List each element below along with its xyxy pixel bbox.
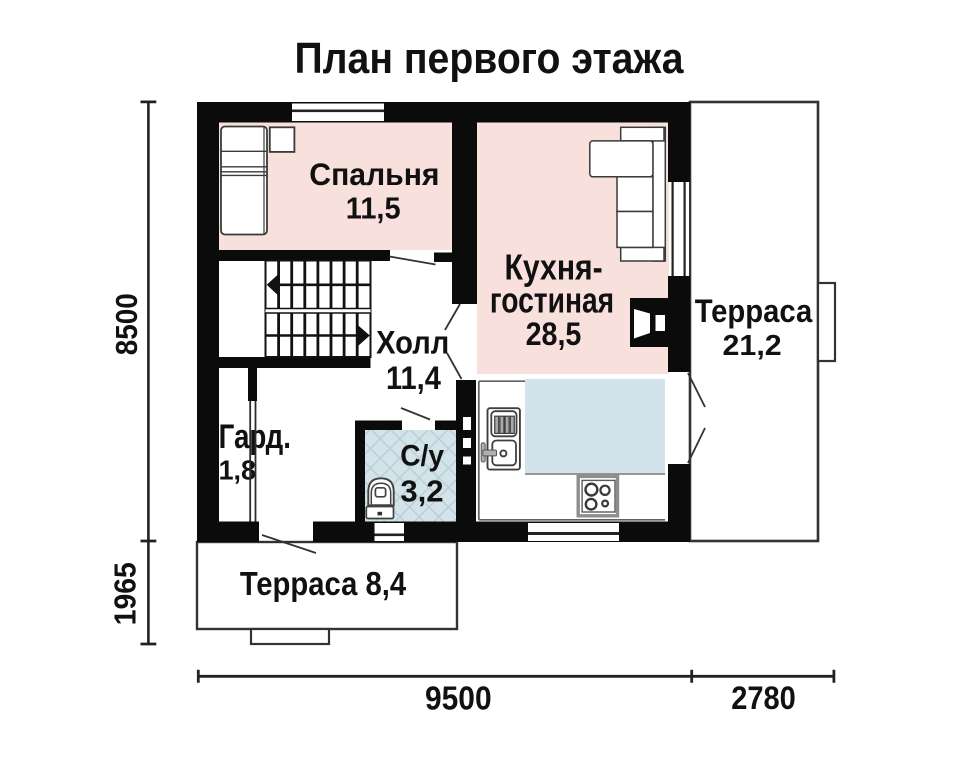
svg-text:3,2: 3,2 <box>400 474 443 509</box>
svg-text:11,4: 11,4 <box>386 360 441 396</box>
svg-text:гостиная: гостиная <box>490 280 614 321</box>
svg-text:11,5: 11,5 <box>346 191 401 226</box>
svg-text:Терраса 8,4: Терраса 8,4 <box>240 565 407 602</box>
svg-text:Терраса: Терраса <box>695 293 813 329</box>
svg-text:С/у: С/у <box>400 440 444 473</box>
svg-text:2780: 2780 <box>731 680 796 716</box>
svg-text:9500: 9500 <box>425 679 492 716</box>
svg-text:28,5: 28,5 <box>526 316 582 352</box>
svg-text:Холл: Холл <box>376 324 449 360</box>
svg-text:План первого этажа: План первого этажа <box>295 34 684 83</box>
svg-text:21,2: 21,2 <box>723 330 782 362</box>
svg-text:1965: 1965 <box>108 562 142 625</box>
svg-text:Спальня: Спальня <box>309 156 439 192</box>
svg-text:8500: 8500 <box>110 293 144 355</box>
